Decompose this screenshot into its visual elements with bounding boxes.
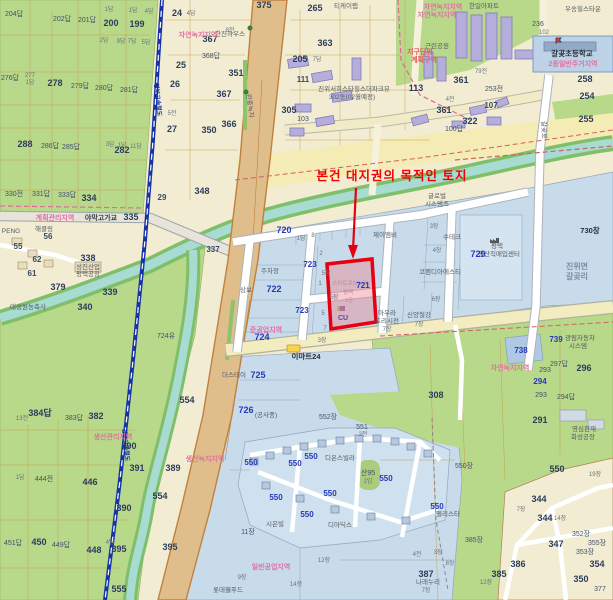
place-label: 화성공장 [571,432,595,441]
zone-label: 일반공업지역 [252,562,291,571]
parcel-label: 724유 [157,332,176,340]
parcel-label: 102 [539,30,550,36]
parcel-label: 11장 [241,527,255,536]
parcel-label: 308 [428,390,443,400]
place-label: 광림자동차 [565,333,595,342]
parcel-label: 337 [206,245,220,254]
parcel-label: 724 [254,332,269,342]
parcel-label: 7장 [383,325,392,333]
parcel-label: 550 [430,502,444,511]
parcel-label: 8전 [226,26,235,34]
place-label: 티케이랩 [334,1,358,10]
annotation-text: 본건 대지권의 목적인 토지 [317,168,468,183]
place-label: 평택공장 [76,269,100,278]
parcel-label: 730창 [580,225,600,235]
parcel-label: 350 [573,574,588,584]
parcel-label: 385 [491,569,506,579]
parcel-label: 27 [167,124,177,134]
parcel-label: 4답 [106,539,115,546]
parcel-label: 382 [88,411,103,421]
parcel-label: 294 [533,377,547,386]
parcel-label: 113 [409,83,424,93]
zone-label: 계획구역 [411,55,437,64]
parcel-label: 297답 [550,359,569,368]
store-label: 이마트24 [291,351,321,361]
parcel-label: 236 [532,21,544,28]
parcel-label: 555 [111,584,126,594]
parcel-label: 384답 [28,407,52,418]
parcel-label: 7장 [415,320,424,328]
parcel-label: 550 [244,458,258,467]
parcel-label: 551 [356,424,368,431]
zone-label: 계획관리지역 [36,213,75,222]
parcel-label: 14장 [290,580,303,588]
parcel-label: 2임 [364,477,373,485]
emart24-icon [287,345,300,352]
parcel-label: 367 [216,89,231,99]
place-label: 한일아파트 [469,1,499,10]
parcel-label: 253전 [485,84,503,93]
parcel-label: 62 [33,255,42,264]
parcel-label: 340 [77,302,92,312]
parcel-label: 14장 [554,514,567,522]
place-label: 상보 [240,285,252,294]
parcel-label: 322 [462,116,477,126]
store-label: CU [338,315,348,322]
parcel-label: 339 [102,287,117,297]
parcel-label: 348 [194,186,209,196]
parcel-label: 1답 [297,235,306,242]
zone-label: 생산관리지역 [94,432,133,441]
place-label: 대성원농축사 [10,302,46,311]
parcel-label: 2답 [100,37,109,44]
parcel-label: 355장 [588,538,607,547]
cadastral-map: 본건 대지권의 목적인 토지 204답 202답 201답 200 199 1답… [0,0,613,600]
place-label: 우송힐스타운 [565,4,601,13]
parcel-label: 550 [300,510,314,519]
place-label: 디온스빌라 [325,453,355,462]
parcel-label: 550장 [455,461,474,470]
parcel-label: 450 [31,537,46,547]
parcel-label: 258 [577,74,592,84]
parcel-label: 738 [514,346,528,355]
parcel-label: 347 [548,539,563,549]
parcel-label: 550 [288,459,302,468]
parcel-label: 390 [121,441,136,451]
parcel-label: 111 [297,75,310,84]
zone-label: 자연녹지지역 [424,2,463,11]
parcel-label: 204답 [5,9,24,18]
parcel-label: 7답 [128,38,137,45]
subject-city-label: 평택 [343,289,353,296]
parcel-label: 386 [510,559,525,569]
parcel-label: 379 [50,282,65,292]
parcel-label: 331답 [32,189,51,198]
parcel-label: 294답 [557,392,576,401]
parcel-label: 550 [269,493,283,502]
parcel-label: 550 [323,489,337,498]
place-label: 영심판재 [572,424,596,433]
district-label: 진위면 [566,261,588,271]
parcel-label: 7장 [422,586,431,594]
parcel-label: 278 [47,78,62,88]
parcel-label: 4전 [413,550,422,558]
place-label: 시은빌 [266,520,284,528]
place-label: 시스템즈 [425,200,449,208]
parcel-label: 3장 [430,222,439,230]
parcel-label: 350 [201,125,216,135]
parcel-label: 446 [82,477,97,487]
parcel-label: 11답 [130,143,142,150]
parcel-label: 552장 [319,412,338,421]
parcel-label: 725 [250,370,265,380]
place-label: 디아딕스 [328,520,352,529]
parcel-label: 56 [44,232,53,241]
parcel-label: 2전 [359,430,368,438]
place-label: 신양철강 [407,310,431,319]
parcel-label: 333답 [58,190,77,199]
parcel-label: 554 [152,491,167,501]
parcel-label: 276답 [1,73,20,82]
parcel-label: 4답 [145,8,154,15]
parcel-label: 55 [14,242,23,251]
parcel-label: 722 [266,284,281,294]
parcel-label: 726 [238,405,253,415]
parcel-label: 3장 [434,548,443,556]
parcel-label: 390 [116,503,131,513]
parcel-label: 293 [539,367,551,374]
tree-icon [248,26,253,31]
parcel-label: 385장 [465,535,484,544]
parcel-label: 729 [470,249,485,259]
parcel-label: 723 [303,260,317,269]
field-region [0,0,158,215]
parcel-label: 5장 [322,269,331,277]
parcel-label: 6장 [330,293,339,301]
parcel-label: 354 [589,559,604,569]
place-label: 펠리스타 [436,509,460,518]
school-label: 갈곶초등학교 [551,48,592,58]
parcel-label: 391 [129,463,144,473]
road-label: 갈곶로 [540,121,549,139]
parcel-label: 5전 [168,109,177,117]
parcel-label: 344 [537,513,552,523]
parcel-label: 100답 [445,124,464,133]
parcel-label: 199 [129,19,144,29]
zone-label: 자연녹지지역 [418,10,457,19]
parcel-label: 361 [436,105,451,115]
subject-parcel-number: 721 [356,281,370,290]
parcel-label: 720 [276,225,291,235]
place-label: 나래누리 [416,577,440,586]
parcel-label: 387 [418,569,433,579]
zone-label: 생산녹지지역 [186,454,225,463]
parcel-label: 723 [295,306,309,315]
parcel-label: 389 [165,463,180,473]
parcel-label: 1답 [16,474,25,481]
place-label: 코펜디아에스티 [419,267,461,276]
parcel-label: 12장 [480,578,493,586]
parcel-label: 550 [379,474,393,483]
parcel-label: 344 [531,494,546,504]
place-label: 성진산업 [76,262,100,271]
parcel-label: 29 [158,193,167,202]
parcel-label: 366 [221,119,236,129]
parcel-label: 377 [594,586,606,593]
parcel-label: 288 [17,139,32,149]
parcel-label: 13전 [16,414,28,422]
parcel-label: 277 [25,73,36,79]
parcel-label: 8창 [446,559,455,567]
parcel-label: 338 [80,253,95,263]
place-label: 아우라 [378,308,396,317]
parcel-label: 554 [179,395,194,405]
parcel-label: 254 [579,91,594,101]
parcel-label: 281답 [120,85,139,94]
place-label: 수테크 [443,233,461,241]
place-label: 302동(02월예정) [329,92,375,101]
parcel-label: 107 [484,101,498,110]
parcel-label: 4장 [433,246,442,254]
place-label: 글로벌 [428,191,446,200]
parcel-label: 335 [123,212,138,222]
parcel-label: 296 [576,363,591,373]
parcel-label: 205 [292,54,307,64]
parcel-label: 375 [256,0,271,10]
parcel-label: 3장 [318,336,327,344]
parcel-label: 1답 [26,79,35,86]
zone-label: 자연녹지지역 [491,363,530,372]
parcel-label: 449답 [52,540,71,549]
parcel-label: 280답 [95,83,114,92]
parcel-label: 448 [86,545,101,555]
parcel-label: 330전 [5,189,23,198]
parcel-label: 353장 [576,547,595,556]
place-label: 시스템 [569,342,587,350]
parcel-label: 395 [162,542,177,552]
parcel-label: 103 [297,116,309,123]
parcel-label: 25 [176,60,186,70]
parcel-label: 24 [172,8,182,18]
parcel-label: 279답 [71,81,90,90]
place-label: 진위서희스타힐스더파크뷰 [318,84,390,93]
bridge-label: 야막고가교 [85,213,118,222]
parcel-label: 5답 [142,39,151,46]
parcel-label: 61 [28,269,37,278]
parcel-label: 739 [549,335,563,344]
place-label: 주차장 [261,266,279,275]
place-label: 더스테이 [222,370,246,379]
district-label: 갈곶리 [566,271,588,281]
subject-unit-label: 2공 [345,297,353,304]
parcel-label: 383답 [65,413,84,422]
parcel-label: 305 [281,105,296,115]
parcel-label: 12장 [318,556,331,564]
parcel-label: 550 [304,452,318,461]
parcel-label: 265 [307,3,322,13]
parcel-label: 1답 [129,7,138,14]
parcel-label: 351 [228,68,243,78]
place-label: 평택 [491,241,503,250]
parcel-label: 4전 [446,95,455,103]
parcel-label: 255 [578,114,593,124]
parcel-label: 1답 [105,6,114,13]
parcel-label: 444전 [35,474,53,483]
parcel-label: 200 [103,18,118,28]
parcel-label: 201답 [78,15,97,24]
place-label: 롯데웰푸드 [213,585,243,594]
parcel-label: 9답 [117,38,126,45]
parcel-label: 202답 [53,14,72,23]
place-label: PENG [2,228,20,235]
parcel-label: 4답 [187,10,196,17]
place-label: 프리시전 [375,316,399,325]
zone-label: 지구단위 [407,47,433,56]
parcel-label: 363 [317,38,332,48]
parcel-label: 6장 [432,295,441,303]
zone-label: 2종일반주거지역 [549,59,598,68]
parcel-label: 286답 [41,141,60,150]
parcel-label: 352장 [572,529,591,538]
parcel-label: 79전 [475,67,487,75]
parcel-label: 291 [532,415,547,425]
parcel-label: 361 [453,75,468,85]
zone-label: 자연녹지지역 [179,30,218,39]
parcel-label: 451답 [4,538,23,547]
parcel-label: 26 [170,79,180,89]
parcel-label: 282 [114,145,129,155]
parcel-label: 368답 [202,51,221,60]
map-canvas: 본건 대지권의 목적인 토지 204답 202답 201답 200 199 1답… [0,0,613,600]
place-label: 제이엠비 [373,230,397,239]
parcel-label: 334 [81,193,96,203]
parcel-label: 19장 [589,470,602,478]
parcel-label: 293 [535,392,547,399]
parcel-label: 산95 [361,468,375,477]
parcel-label: 285답 [62,142,81,151]
place-label: (공사중) [255,410,277,419]
parcel-label: 550 [549,464,564,474]
parcel-label: 9장 [238,573,247,581]
parcel-label: 7답 [313,56,322,63]
parcel-label: 7장 [517,505,526,513]
